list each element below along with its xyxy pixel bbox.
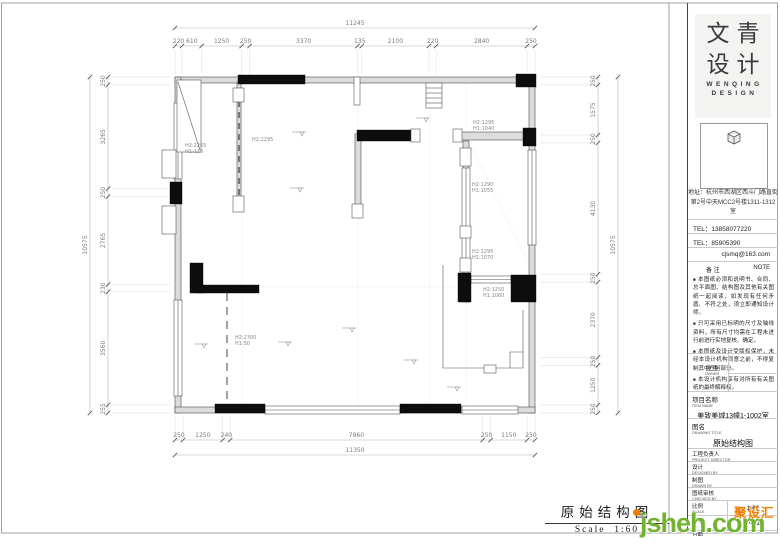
svg-text:250: 250 [525, 432, 537, 439]
scale-value: 1:60 [727, 501, 778, 515]
svg-text:250: 250 [240, 38, 252, 45]
svg-text:250: 250 [173, 432, 185, 439]
svg-text:135: 135 [354, 38, 366, 45]
svg-text:4130: 4130 [590, 201, 597, 216]
sheet-number-value: P-01 [727, 516, 778, 530]
svg-text:610: 610 [186, 38, 198, 45]
svg-text:1250: 1250 [195, 432, 210, 439]
logo-en-line1: WENQING [698, 81, 771, 89]
scale-row: 比例 SCALE 1:60 [688, 500, 778, 515]
logo: 文青 设计 WENQING DESIGN [695, 14, 771, 118]
svg-text:3370: 3370 [296, 38, 311, 45]
studio-address: 地址：杭州市西湖区西斗门路直街 第2号中天MCC2号楼1311-1312室 [688, 189, 778, 218]
svg-text:H1:1040: H1:1040 [473, 126, 494, 132]
svg-text:H1:1070: H1:1070 [472, 255, 493, 261]
svg-text:1150: 1150 [501, 432, 516, 439]
svg-text:220: 220 [427, 38, 439, 45]
email-row: cjsmq@163.com [688, 247, 778, 260]
title-underline [545, 523, 669, 524]
svg-text:H1:50: H1:50 [235, 341, 250, 347]
draftsman-row: 制图 DRAWN BY [688, 474, 778, 487]
svg-text:250: 250 [481, 432, 493, 439]
svg-text:3265: 3265 [100, 129, 107, 144]
svg-text:250: 250 [590, 272, 597, 284]
owner-row: 业主 OWNER [688, 353, 778, 391]
svg-text:255: 255 [100, 403, 107, 415]
note-list: ■ 本图纸必须和说明书、合同、总平面图、结构图及其他有关图纸一起阅读，如发现有任… [688, 273, 778, 353]
designer-row: 设计 DESIGNED BY [688, 461, 778, 474]
svg-text:1575: 1575 [590, 102, 597, 117]
svg-text:3560: 3560 [100, 340, 107, 355]
cube-icon [725, 129, 743, 147]
svg-text:2840: 2840 [474, 38, 489, 45]
drawing-title-block: 原始结构图 Scale 1:60 [543, 501, 671, 535]
logo-cn-line1: 文青 [707, 20, 767, 46]
svg-text:7960: 7960 [349, 432, 364, 439]
svg-text:1250: 1250 [214, 38, 229, 45]
level-markers [194, 118, 461, 391]
svg-text:250: 250 [590, 133, 597, 145]
checker-row: 图纸审核 CHECKED BY [688, 487, 778, 500]
sheet-number-row: 图号 No. P-01 [688, 515, 778, 530]
title-block-panel: 文青 设计 WENQING DESIGN 地址：杭州市西湖区西斗门路直街 第2号… [687, 3, 778, 533]
project-name-row: 项目名称 ITEM NAME 美致美城13幢1-1002室 [688, 391, 778, 418]
svg-text:H1:1055: H1:1055 [472, 188, 493, 194]
svg-text:250: 250 [525, 38, 537, 45]
svg-text:H2:2295: H2:2295 [252, 137, 273, 143]
door-jambs [233, 88, 471, 272]
svg-text:250: 250 [100, 75, 107, 87]
svg-text:250: 250 [590, 403, 597, 415]
svg-text:230: 230 [100, 282, 107, 294]
svg-text:2100: 2100 [388, 38, 403, 45]
svg-text:11245: 11245 [345, 20, 364, 27]
svg-text:240: 240 [221, 432, 233, 439]
logo-cn-line2: 设计 [707, 51, 767, 77]
svg-text:H1:1060: H1:1060 [483, 293, 504, 299]
logo-en-line2: DESIGN [698, 90, 771, 98]
stamp-box [700, 123, 768, 189]
svg-text:250: 250 [590, 75, 597, 87]
floor-plan-svg: 11245 220 610 1250 250 3370 135 2100 220… [0, 0, 780, 551]
svg-text:10575: 10575 [82, 235, 89, 254]
svg-text:1250: 1250 [590, 377, 597, 392]
drawing-scale: Scale 1:60 [543, 525, 671, 535]
drawing-title: 原始结构图 [543, 501, 671, 521]
director-row: 工程负责人 PROJECT DIRECTOR [688, 448, 778, 461]
svg-text:250: 250 [100, 187, 107, 199]
svg-text:220: 220 [173, 38, 185, 45]
svg-text:11350: 11350 [345, 447, 364, 454]
svg-text:2765: 2765 [100, 233, 107, 248]
date-row: 日期 [688, 530, 778, 536]
svg-text:2370: 2370 [590, 312, 597, 327]
drawing-sheet: 11245 220 610 1250 250 3370 135 2100 220… [0, 0, 780, 551]
svg-text:H1:110: H1:110 [185, 149, 203, 155]
svg-text:250: 250 [590, 355, 597, 367]
drawing-name-row: 图名 DRAWING TITLE 原始结构图 [688, 418, 778, 448]
svg-text:10575: 10575 [610, 235, 617, 254]
height-annotations: H2:2265 H1:110 H2:2295 H2:1295 H1:1040 H… [185, 120, 504, 347]
